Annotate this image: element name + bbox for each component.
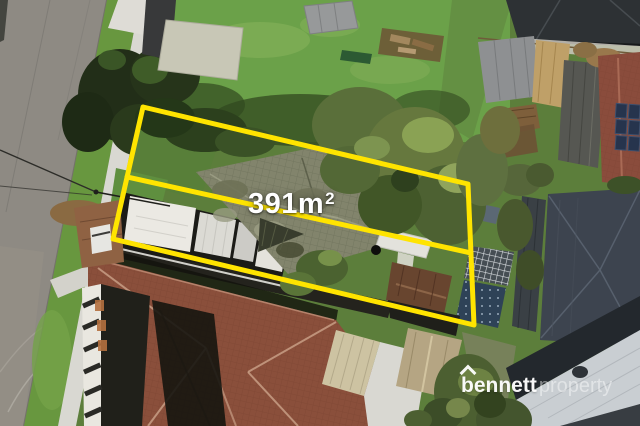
area-value: 391m <box>248 188 324 220</box>
grey-shed-roof <box>478 36 540 103</box>
watermark-brand-primary: bennett <box>461 374 537 397</box>
utility-pole <box>94 190 99 195</box>
watermark-brand-secondary: property <box>539 375 612 397</box>
concrete-pad <box>158 20 243 80</box>
round-tank <box>371 245 381 255</box>
solar-panels <box>613 103 640 151</box>
watermark-brand-primary-text: bennett <box>461 374 537 397</box>
land-area-label: 391m2 <box>248 190 335 219</box>
grey-garden-shed <box>304 1 358 34</box>
white-trailer <box>90 224 112 254</box>
area-exponent: 2 <box>325 189 335 208</box>
agency-watermark: bennettproperty <box>461 375 612 396</box>
aerial-listing-photo: 391m2 bennettproperty <box>0 0 640 426</box>
